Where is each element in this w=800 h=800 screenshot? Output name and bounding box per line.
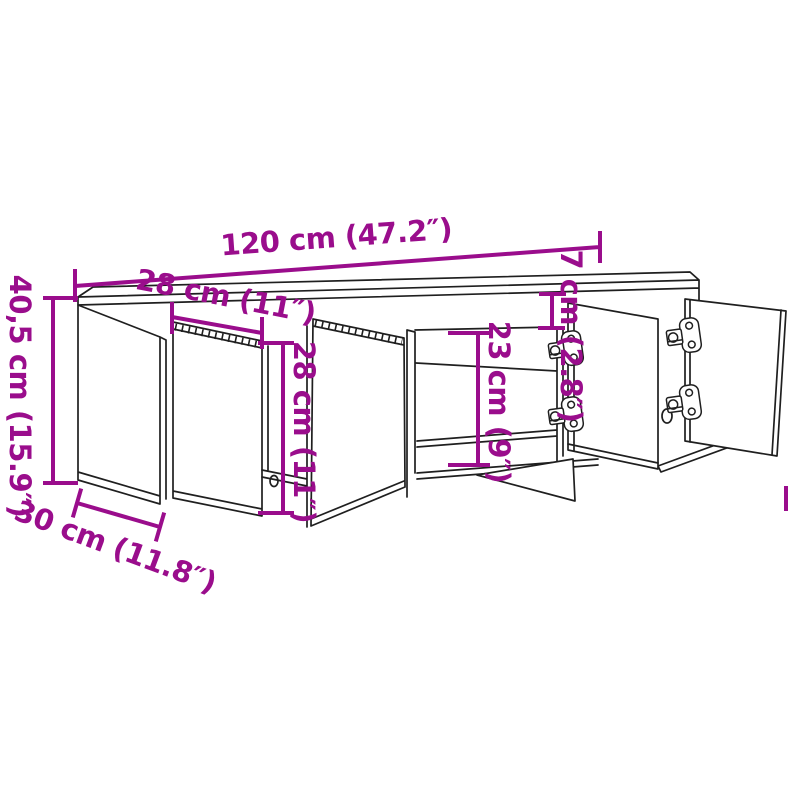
cabinet-drawing xyxy=(78,272,786,527)
dimension-compartment-height: 23 cm (9″) xyxy=(448,321,516,484)
door-hinge-icon xyxy=(665,384,702,422)
dimension-top-clearance-label: 7 cm (2.8″) xyxy=(554,249,588,422)
dimension-door-width-label: 28 cm (11″) xyxy=(133,262,318,330)
product-dimension-diagram: 120 cm (47.2″) 28 cm (11″) 40,5 cm (15.9… xyxy=(0,0,800,800)
dimension-overall-height-label: 40,5 cm (15.9″) xyxy=(3,275,37,518)
dimension-compartment-height-label: 23 cm (9″) xyxy=(482,321,516,484)
dimension-overall-depth-label: 30 cm (11.8″) xyxy=(10,494,221,600)
cabinet-door-1 xyxy=(173,322,262,516)
door-hinge-icon xyxy=(665,317,702,355)
dimension-overall-height: 40,5 cm (15.9″) xyxy=(3,275,78,518)
dimension-overall-width-label: 120 cm (47.2″) xyxy=(219,212,453,263)
tv-cabinet-dimension-drawing: 120 cm (47.2″) 28 cm (11″) 40,5 cm (15.9… xyxy=(0,0,800,800)
cabinet-left-side-panel xyxy=(78,305,166,504)
cabinet-door-2 xyxy=(311,319,405,526)
dimension-overall-depth: 30 cm (11.8″) xyxy=(10,489,221,600)
shelf-pin-hole xyxy=(270,476,278,487)
dimension-door-height-label: 28 cm (11″) xyxy=(287,341,321,523)
cabinet-door-4 xyxy=(685,299,786,456)
dimension-line xyxy=(43,298,78,483)
door-2-edge-hatching xyxy=(315,323,402,342)
